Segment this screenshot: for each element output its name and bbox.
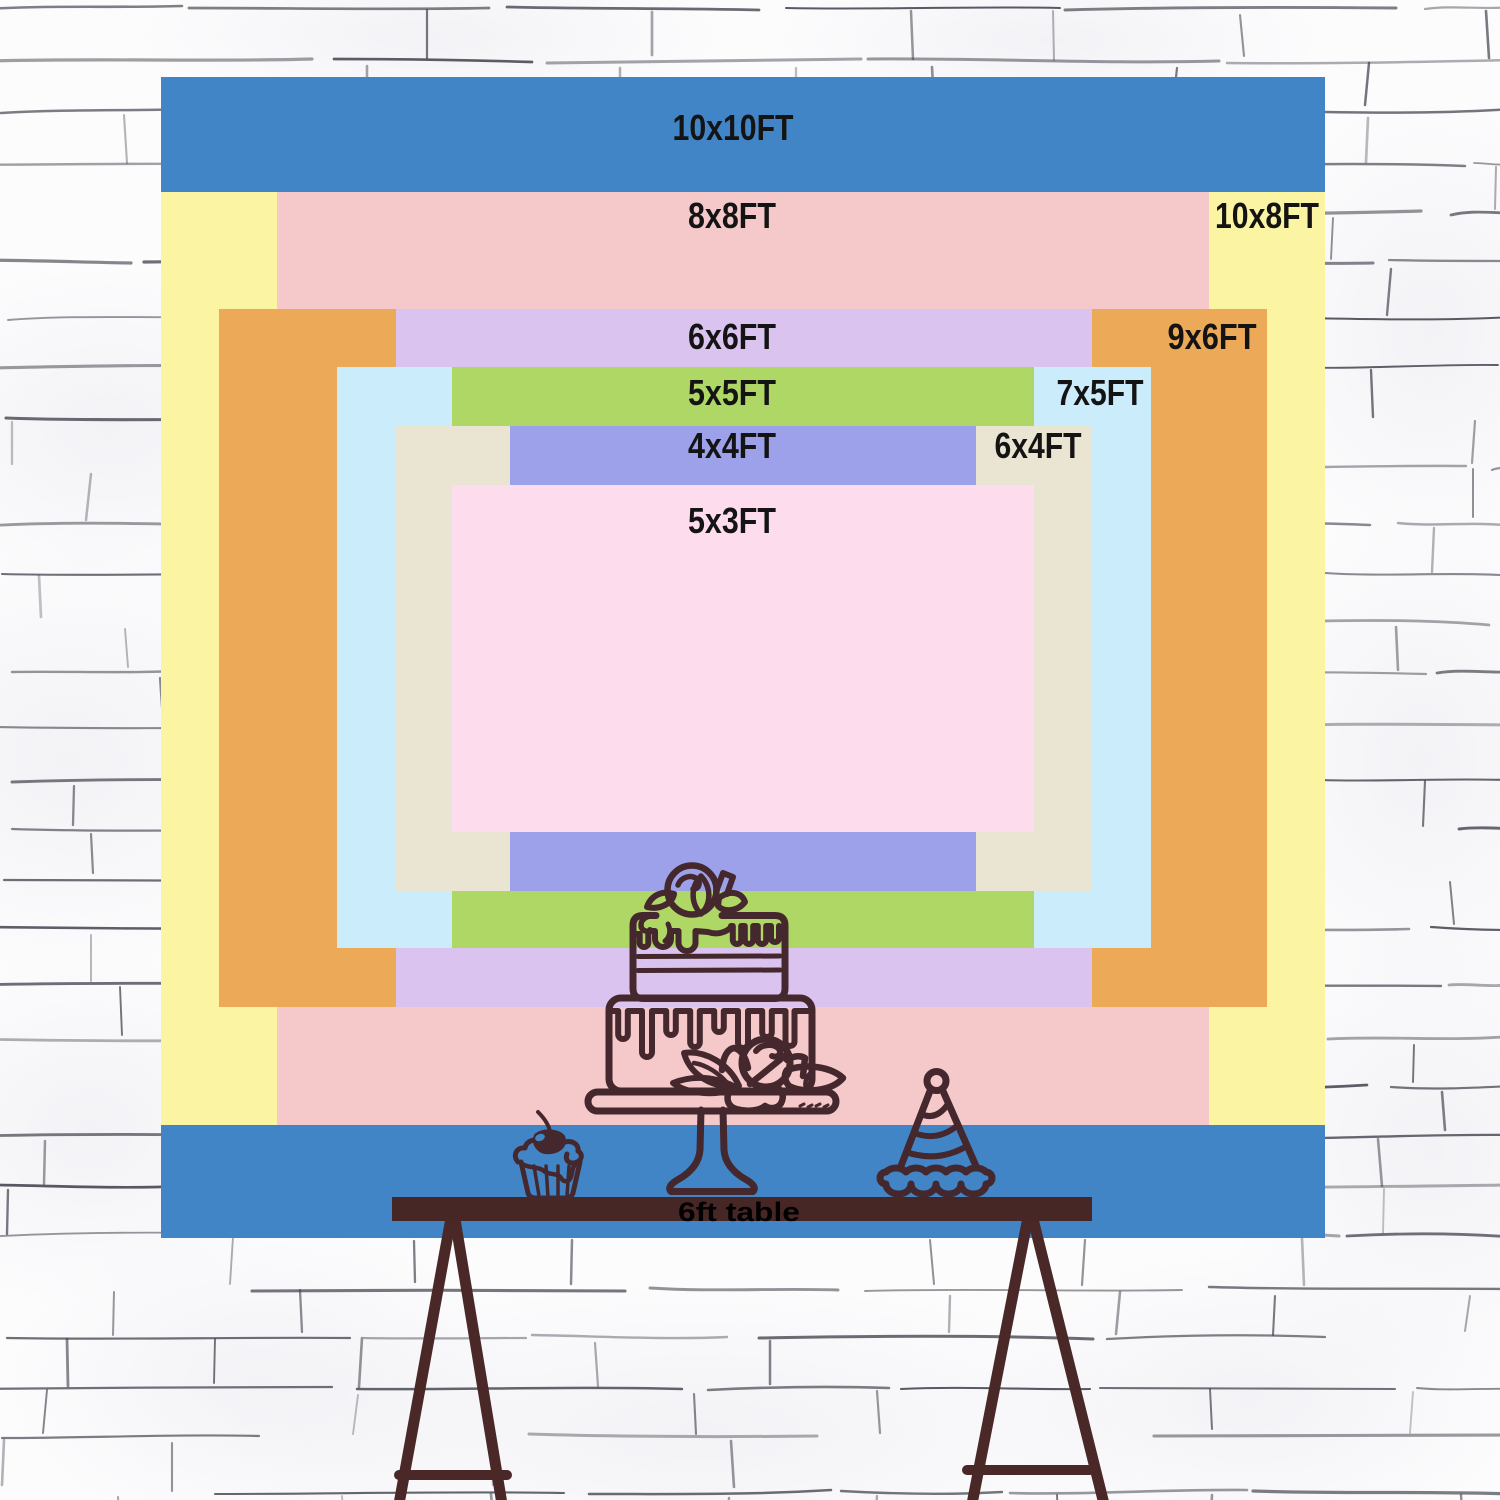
svg-text:10x10FT: 10x10FT <box>673 107 794 148</box>
svg-text:7x5FT: 7x5FT <box>1057 372 1144 413</box>
svg-text:6x6FT: 6x6FT <box>688 316 776 357</box>
svg-text:6ft table: 6ft table <box>678 1197 800 1227</box>
svg-text:10x8FT: 10x8FT <box>1215 195 1319 236</box>
svg-text:9x6FT: 9x6FT <box>1168 316 1257 357</box>
svg-text:6x4FT: 6x4FT <box>995 425 1082 466</box>
svg-text:8x8FT: 8x8FT <box>688 195 776 236</box>
svg-text:5x5FT: 5x5FT <box>688 372 776 413</box>
svg-text:5x3FT: 5x3FT <box>688 500 776 541</box>
svg-text:4x4FT: 4x4FT <box>688 425 776 466</box>
